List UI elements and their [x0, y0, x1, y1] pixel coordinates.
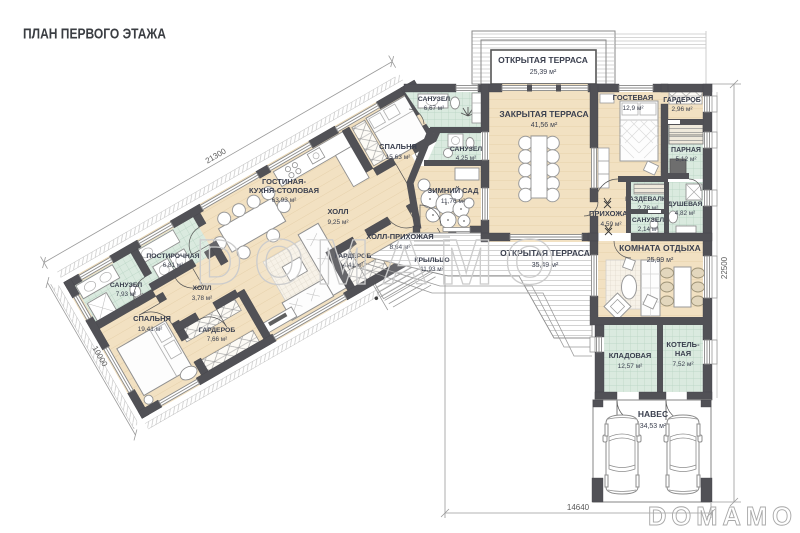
svg-text:5,12 м²: 5,12 м² — [675, 156, 697, 163]
svg-text:34,53 м²: 34,53 м² — [640, 423, 667, 430]
svg-text:25,39 м²: 25,39 м² — [530, 69, 557, 76]
svg-text:2,14 м²: 2,14 м² — [638, 226, 658, 233]
svg-text:КОТЕЛЬ-: КОТЕЛЬ- — [666, 340, 700, 349]
svg-text:63,93 м²: 63,93 м² — [272, 197, 298, 204]
svg-text:ГАРДЕРОБ: ГАРДЕРОБ — [663, 97, 701, 104]
svg-text:9,25 м²: 9,25 м² — [327, 219, 349, 226]
svg-text:САНУЗЕЛ: САНУЗЕЛ — [418, 96, 451, 103]
svg-text:ЗИМНИЙ САД: ЗИМНИЙ САД — [428, 186, 480, 195]
svg-text:САНУЗЕЛ: САНУЗЕЛ — [632, 217, 665, 224]
svg-text:САНУЗЕЛ: САНУЗЕЛ — [110, 282, 143, 289]
svg-text:ГАРДЕРОБ: ГАРДЕРОБ — [199, 327, 236, 334]
svg-text:6,81 м²: 6,81 м² — [163, 262, 183, 269]
svg-text:СПАЛЬНЯ: СПАЛЬНЯ — [379, 142, 417, 151]
svg-text:7,93 м²: 7,93 м² — [116, 291, 136, 298]
svg-text:КОМНАТА ОТДЫХА: КОМНАТА ОТДЫХА — [619, 243, 701, 253]
svg-text:КЛАДОВАЯ: КЛАДОВАЯ — [609, 351, 652, 360]
svg-text:НАЯ: НАЯ — [675, 349, 691, 358]
svg-text:ПОСТИРОЧНАЯ: ПОСТИРОЧНАЯ — [146, 253, 199, 260]
svg-text:4,25 м²: 4,25 м² — [456, 155, 476, 162]
svg-text:ПЛАН ПЕРВОГО ЭТАЖА: ПЛАН ПЕРВОГО ЭТАЖА — [23, 26, 166, 43]
svg-text:41,56 м²: 41,56 м² — [531, 122, 558, 129]
svg-text:6,67 м²: 6,67 м² — [424, 105, 444, 112]
svg-text:НАВЕС: НАВЕС — [638, 409, 668, 419]
svg-text:ГОСТИНАЯ-: ГОСТИНАЯ- — [262, 177, 306, 186]
svg-text:12,9 м²: 12,9 м² — [622, 105, 644, 112]
svg-text:2,96 м²: 2,96 м² — [671, 106, 693, 113]
svg-text:ПАРНАЯ: ПАРНАЯ — [671, 147, 701, 154]
svg-text:КУХНЯ-СТОЛОВАЯ: КУХНЯ-СТОЛОВАЯ — [249, 186, 319, 195]
svg-text:4,59 м²: 4,59 м² — [600, 221, 622, 228]
svg-text:DOMAMO: DOMAMO — [648, 503, 797, 531]
svg-text:СПАЛЬНЯ: СПАЛЬНЯ — [133, 314, 171, 323]
svg-text:ХОЛЛ: ХОЛЛ — [328, 207, 349, 216]
svg-text:7,66 м²: 7,66 м² — [207, 336, 227, 343]
svg-text:DOMAMO: DOMAMO — [196, 226, 567, 298]
svg-text:12,57 м²: 12,57 м² — [618, 363, 644, 370]
svg-text:22500: 22500 — [720, 256, 729, 279]
svg-text:ЗАКРЫТАЯ ТЕРРАСА: ЗАКРЫТАЯ ТЕРРАСА — [499, 109, 588, 119]
svg-text:14640: 14640 — [567, 503, 590, 512]
svg-text:ГОСТЕВАЯ: ГОСТЕВАЯ — [613, 93, 654, 102]
svg-text:19,41 м²: 19,41 м² — [138, 326, 164, 333]
svg-text:7,52 м²: 7,52 м² — [672, 361, 694, 368]
svg-text:ОТКРЫТАЯ ТЕРРАСА: ОТКРЫТАЯ ТЕРРАСА — [498, 55, 588, 65]
svg-text:САНУЗЕЛ: САНУЗЕЛ — [450, 146, 483, 153]
svg-text:25,99 м²: 25,99 м² — [647, 257, 674, 264]
svg-text:11,76 м²: 11,76 м² — [441, 198, 466, 205]
svg-text:15,63 м²: 15,63 м² — [386, 154, 412, 161]
svg-text:ДУШЕВАЯ: ДУШЕВАЯ — [668, 201, 703, 208]
svg-text:4,82 м²: 4,82 м² — [675, 210, 695, 217]
